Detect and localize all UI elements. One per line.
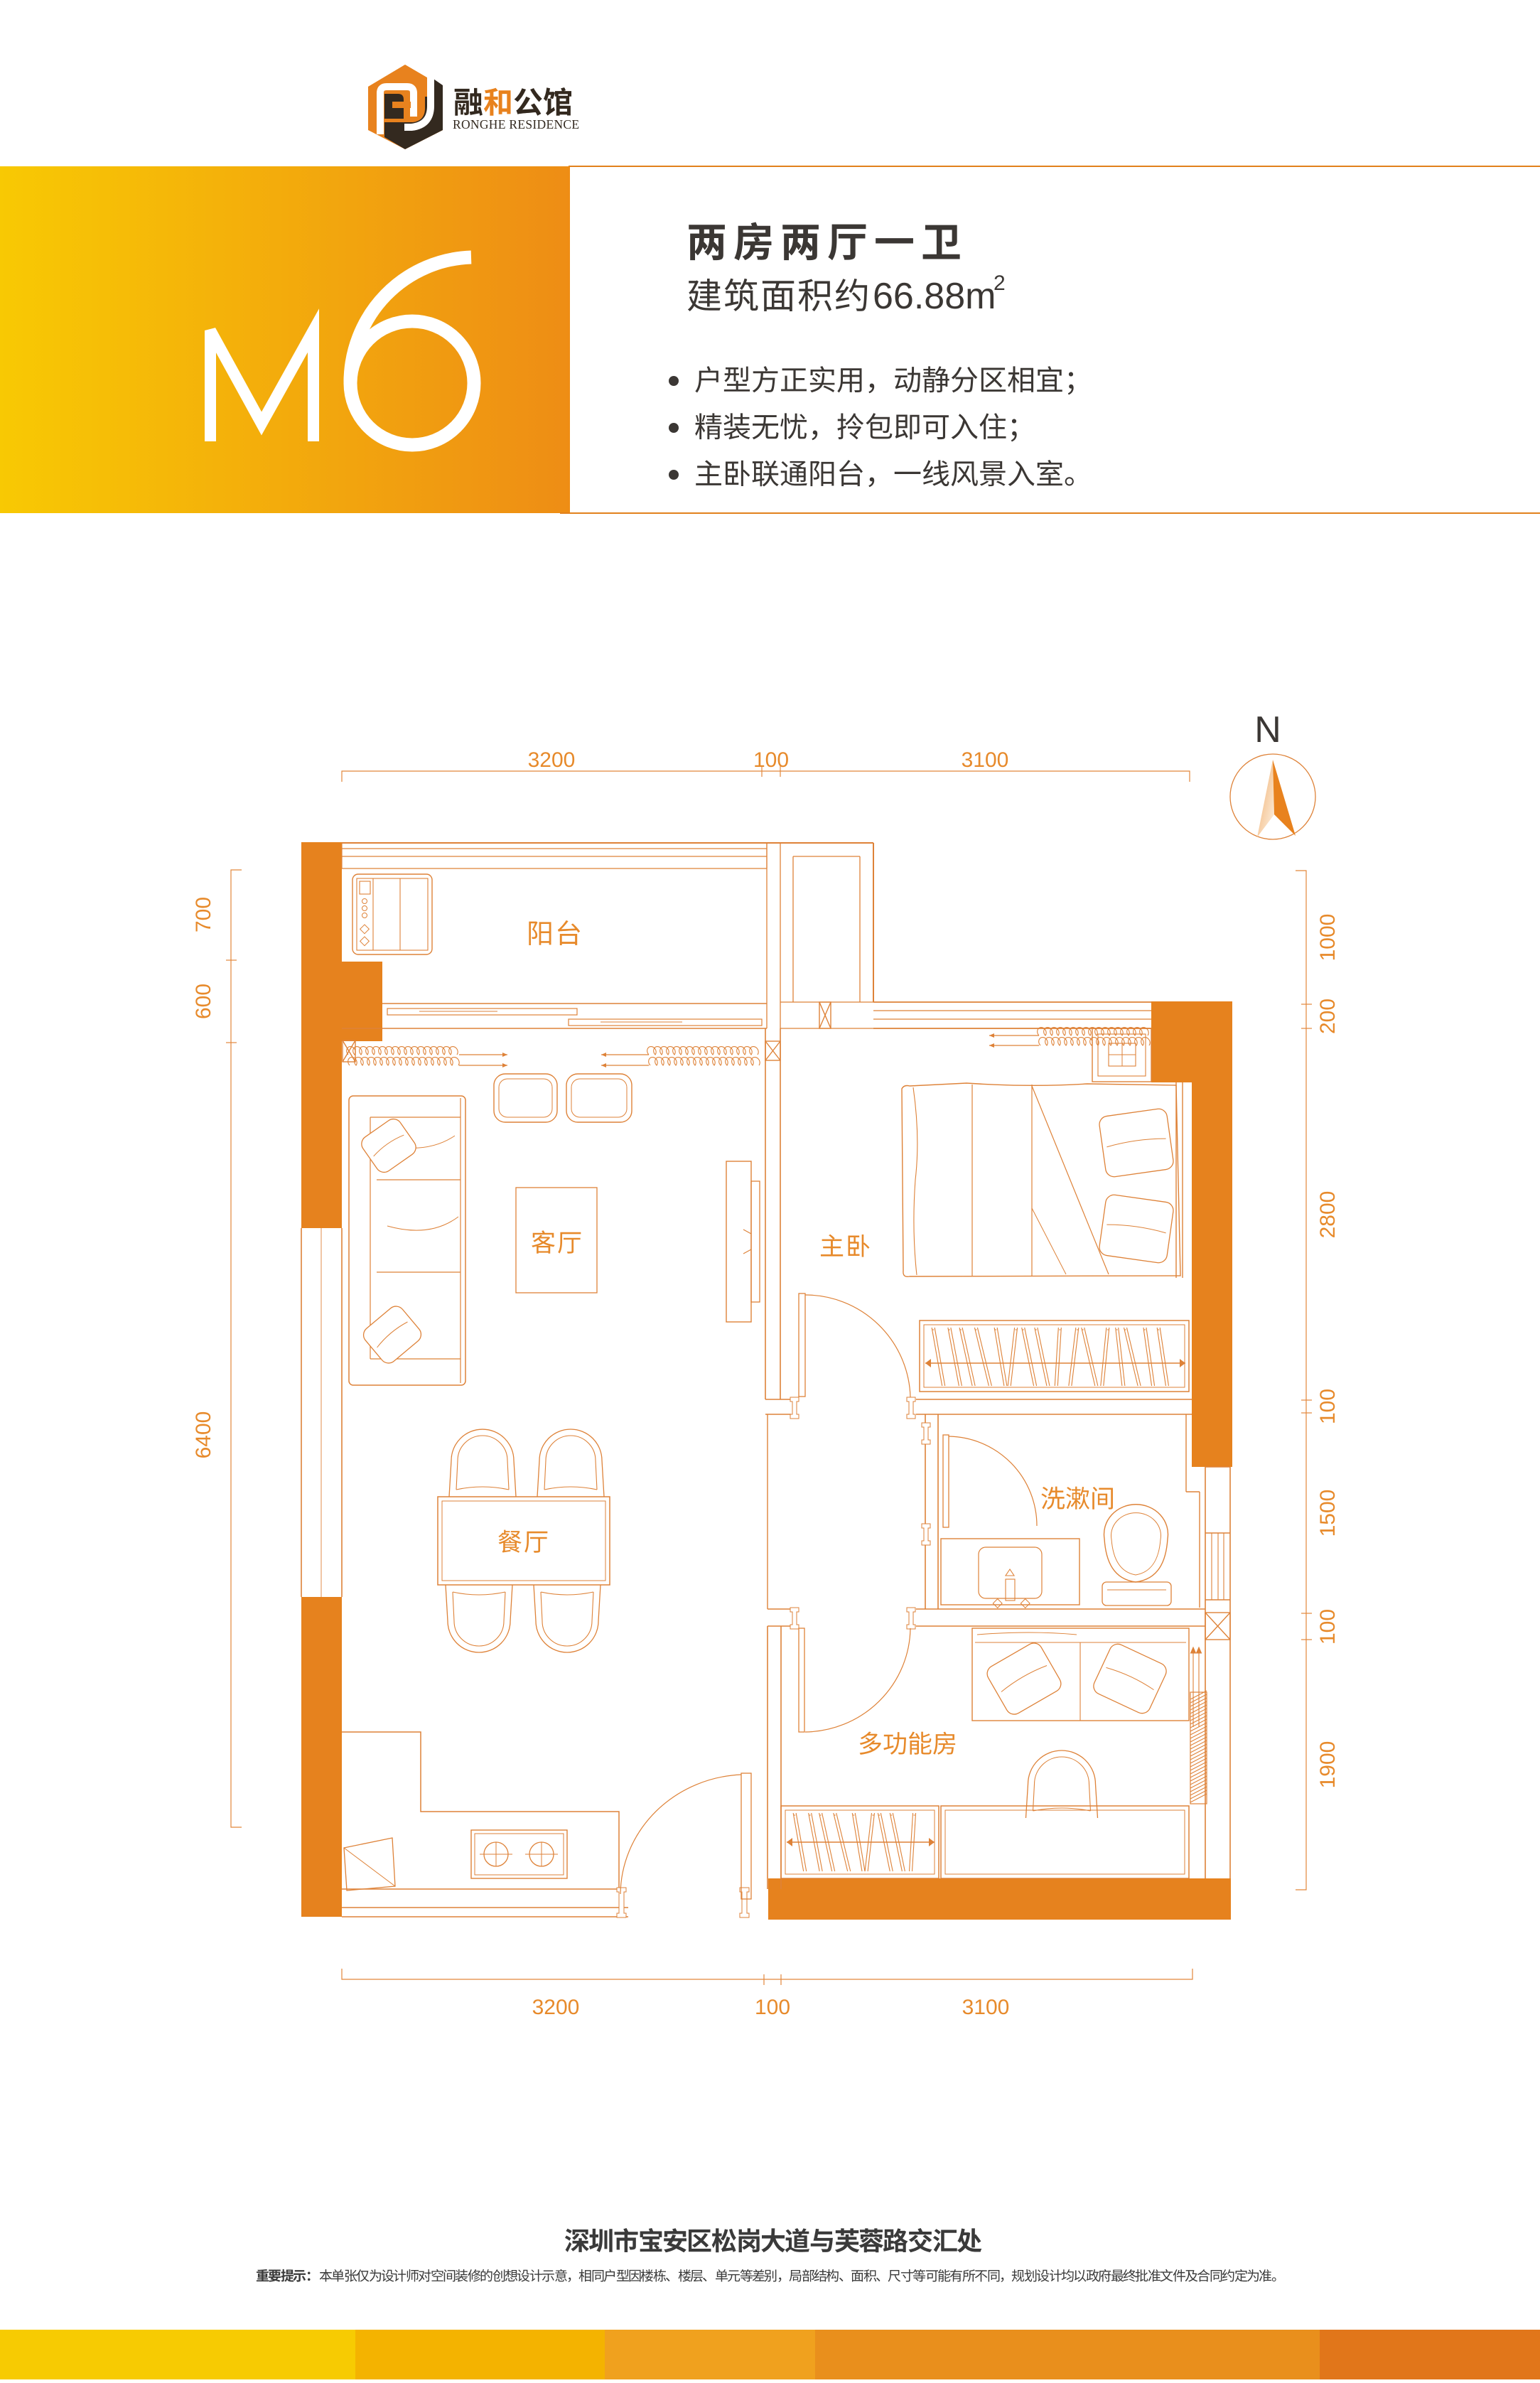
svg-text:3100: 3100 — [962, 1996, 1010, 2019]
svg-text:700: 700 — [192, 897, 215, 932]
svg-text:1900: 1900 — [1316, 1741, 1340, 1789]
svg-text:3200: 3200 — [532, 1996, 580, 2019]
svg-text:3100: 3100 — [962, 748, 1009, 772]
svg-text:100: 100 — [1316, 1609, 1340, 1645]
svg-text:6400: 6400 — [192, 1411, 215, 1459]
svg-text:RONGHE RESIDENCE: RONGHE RESIDENCE — [453, 117, 579, 131]
svg-text:600: 600 — [192, 984, 215, 1019]
svg-text:200: 200 — [1316, 999, 1340, 1034]
svg-text:1000: 1000 — [1316, 914, 1340, 962]
svg-text:2800: 2800 — [1316, 1191, 1340, 1239]
svg-text:2: 2 — [994, 271, 1006, 295]
svg-text:100: 100 — [755, 1996, 790, 2019]
svg-text:100: 100 — [753, 748, 789, 772]
svg-text:N: N — [1254, 709, 1281, 751]
svg-text:100: 100 — [1316, 1389, 1340, 1424]
svg-text:66.88m: 66.88m — [873, 276, 996, 317]
svg-text:3200: 3200 — [528, 748, 576, 772]
svg-text:1500: 1500 — [1316, 1490, 1340, 1537]
